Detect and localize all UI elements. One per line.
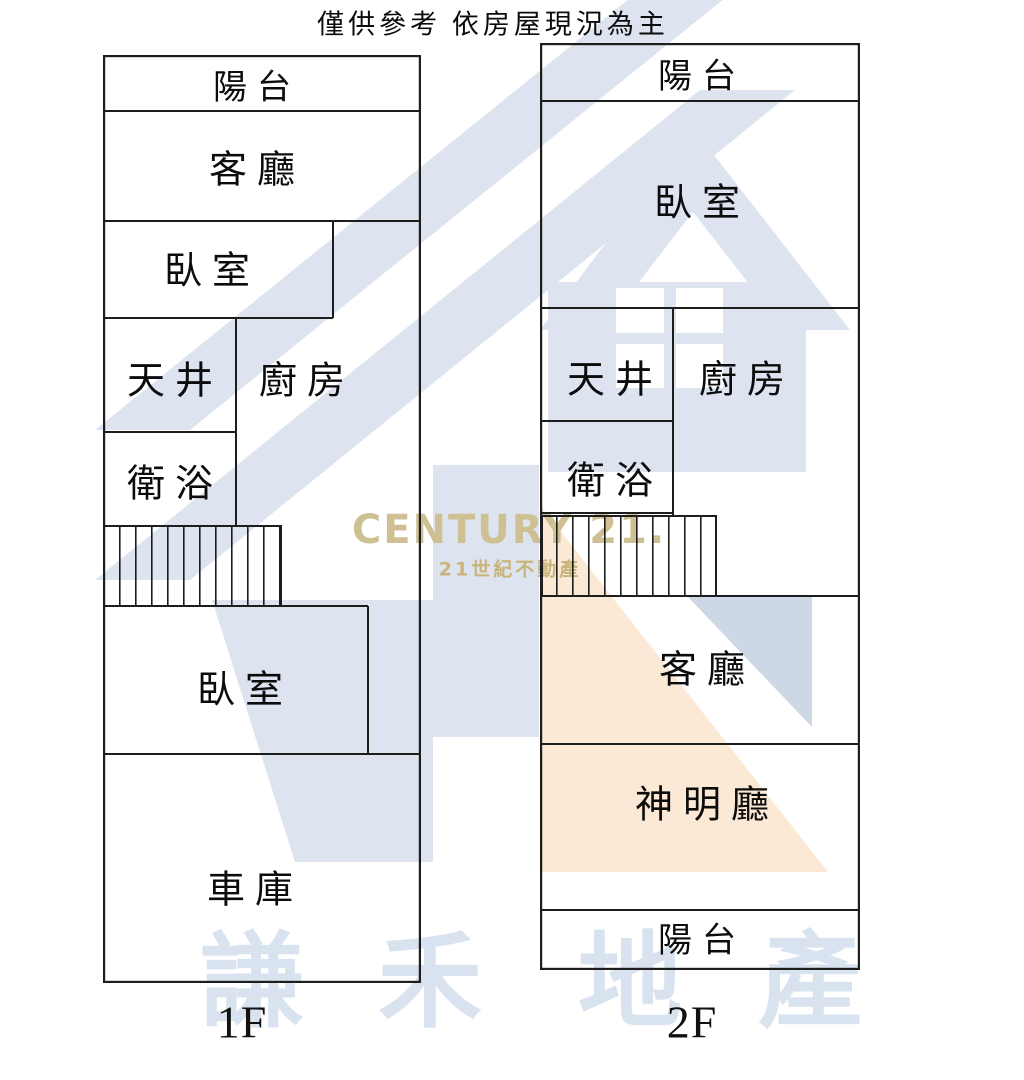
room-label-2f-balcony-rear: 陽台	[648, 913, 746, 962]
room-label-2f-kitchen: 廚房	[689, 349, 795, 404]
room-label-2f-bedroom: 臥室	[644, 172, 750, 227]
logo-gap-block	[433, 465, 539, 737]
room-label-1f-garage: 車庫	[197, 859, 303, 914]
room-label-2f-living-room: 客廳	[649, 639, 755, 694]
room-label-1f-kitchen: 廚房	[249, 350, 355, 405]
floor-label-2f: 2F	[667, 996, 718, 1049]
room-label-1f-bathroom: 衛浴	[117, 453, 223, 508]
stairs-1f	[104, 526, 281, 606]
room-label-2f-balcony-front: 陽台	[648, 49, 746, 98]
disclaimer-title: 僅供參考 依房屋現況為主	[317, 3, 669, 42]
room-label-2f-shrine-room: 神明廳	[625, 774, 779, 829]
plan-1f	[103, 55, 421, 983]
room-label-1f-living-room: 客廳	[199, 139, 305, 194]
room-label-1f-balcony: 陽台	[203, 60, 301, 109]
room-label-1f-bedroom-front: 臥室	[154, 240, 260, 295]
room-label-1f-bedroom-rear: 臥室	[187, 659, 293, 714]
outer-wall-1f	[104, 56, 420, 982]
room-label-2f-light-well: 天井	[557, 349, 663, 404]
room-label-1f-light-well: 天井	[117, 350, 223, 405]
room-label-2f-bathroom: 衛浴	[557, 450, 663, 505]
floor-label-1f: 1F	[217, 996, 268, 1049]
stairs-2f	[542, 516, 716, 596]
floorplan-canvas: CENTURY 21. 21世紀不動產 謙 禾 地 產 僅供參考 依房屋現況為主	[0, 0, 1024, 1080]
